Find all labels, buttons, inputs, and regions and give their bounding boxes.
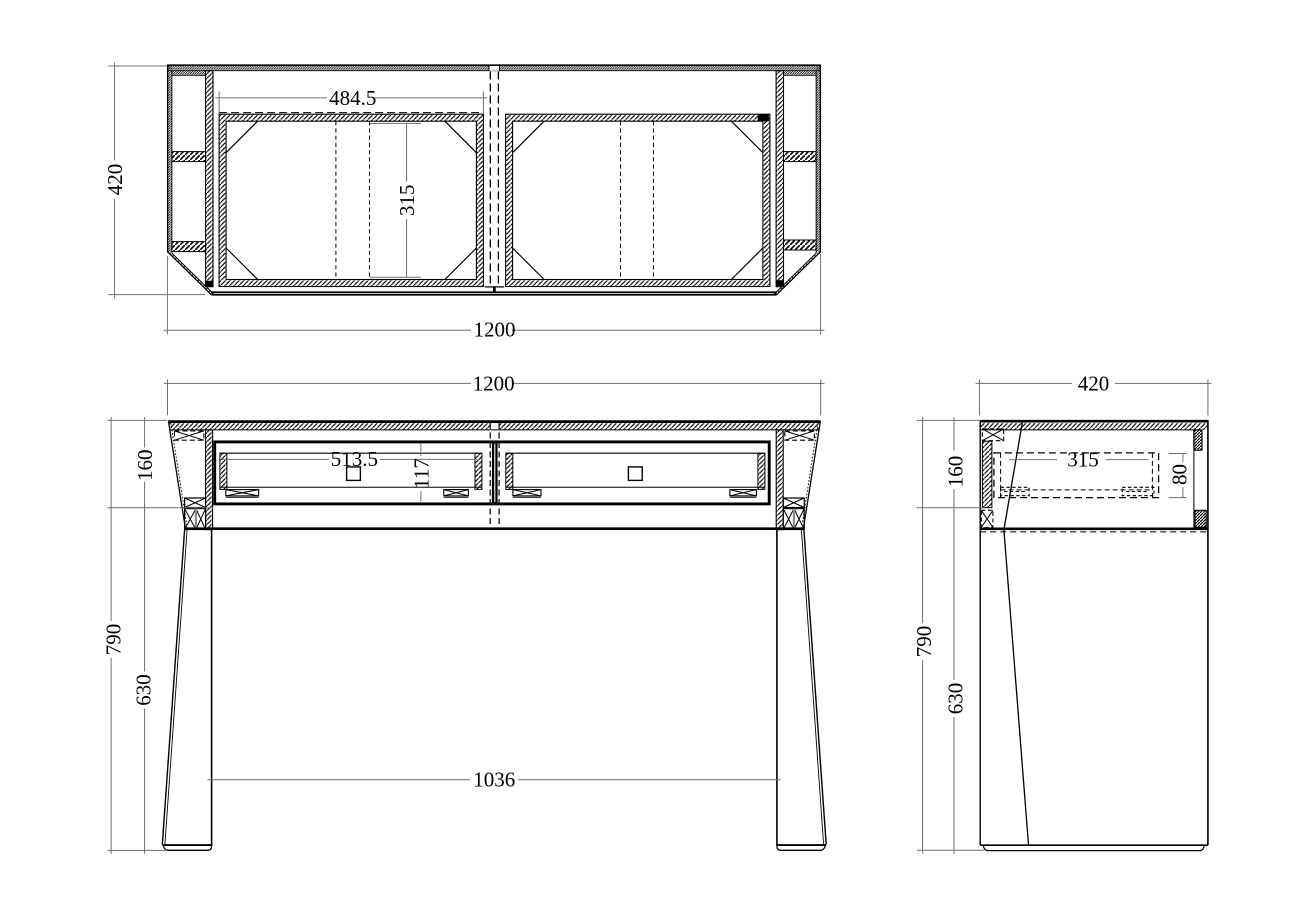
svg-text:484.5: 484.5 — [329, 86, 376, 110]
svg-text:1036: 1036 — [473, 768, 515, 792]
svg-text:790: 790 — [912, 626, 936, 658]
svg-text:160: 160 — [133, 449, 157, 481]
svg-text:315: 315 — [1067, 448, 1099, 472]
svg-text:513.5: 513.5 — [331, 447, 378, 471]
svg-text:790: 790 — [101, 624, 125, 656]
svg-text:420: 420 — [103, 164, 127, 196]
svg-text:80: 80 — [1167, 464, 1191, 485]
svg-text:1200: 1200 — [473, 372, 515, 396]
svg-text:1200: 1200 — [474, 318, 516, 342]
svg-text:420: 420 — [1078, 372, 1110, 396]
svg-text:630: 630 — [943, 683, 967, 715]
svg-text:315: 315 — [395, 184, 419, 216]
svg-text:160: 160 — [944, 456, 968, 488]
svg-text:117: 117 — [409, 458, 433, 489]
svg-text:630: 630 — [132, 674, 156, 706]
